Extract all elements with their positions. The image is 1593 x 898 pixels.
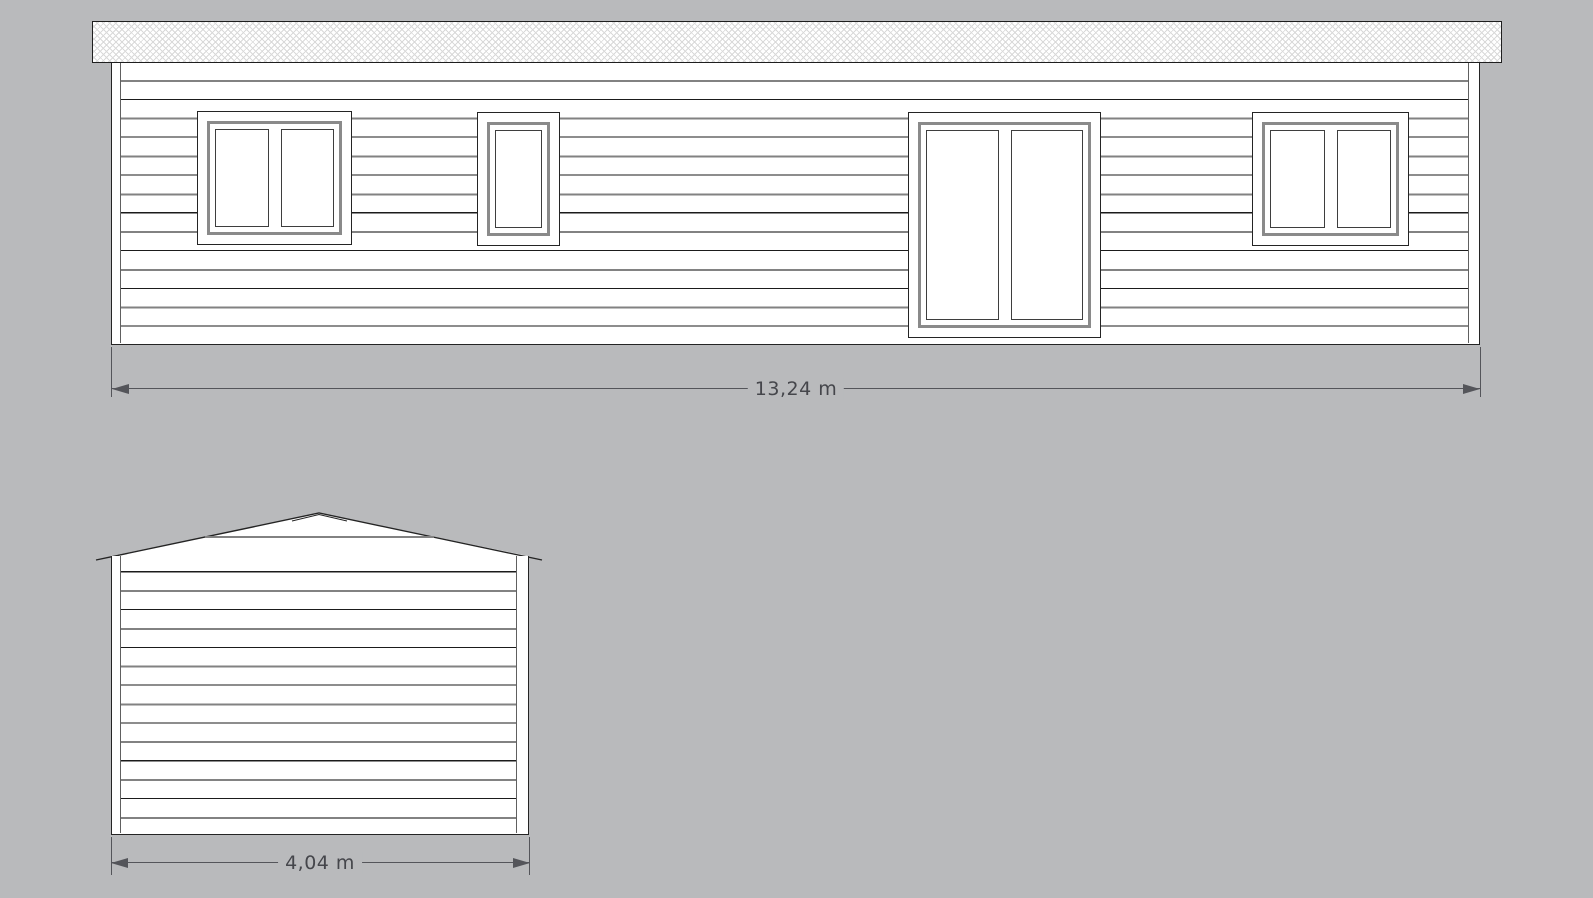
dimension-arrow-right: [513, 858, 530, 868]
window-frame: [207, 121, 342, 235]
extension-line-right: [529, 837, 530, 875]
end-wall-siding: [120, 556, 517, 833]
drawing-canvas: 13,24 m 4,04 m: [0, 0, 1593, 898]
dimension-arrow-right: [1463, 384, 1480, 394]
end-width-dimension: 4,04 m: [278, 852, 362, 874]
dimension-arrow-left: [112, 384, 129, 394]
window-pane: [215, 129, 269, 227]
door-pane: [926, 130, 999, 320]
front-width-dimension: 13,24 m: [748, 378, 844, 400]
gable-triangle: [111, 513, 528, 556]
window-double-casement-left: [197, 111, 352, 245]
door-frame: [918, 122, 1091, 328]
window-frame: [487, 122, 550, 236]
window-double-casement-right: [1252, 112, 1409, 246]
window-frame: [1262, 122, 1399, 236]
window-pane: [1270, 130, 1325, 228]
window-pane: [1337, 130, 1392, 228]
window-pane: [281, 129, 335, 227]
double-glazed-door: [908, 112, 1101, 338]
door-pane: [1011, 130, 1084, 320]
dimension-arrow-left: [111, 858, 128, 868]
window-single-casement: [477, 112, 560, 246]
extension-line-left: [111, 837, 112, 875]
roof-fascia: [92, 21, 1502, 63]
window-pane: [495, 130, 542, 228]
end-wall: [111, 556, 529, 835]
